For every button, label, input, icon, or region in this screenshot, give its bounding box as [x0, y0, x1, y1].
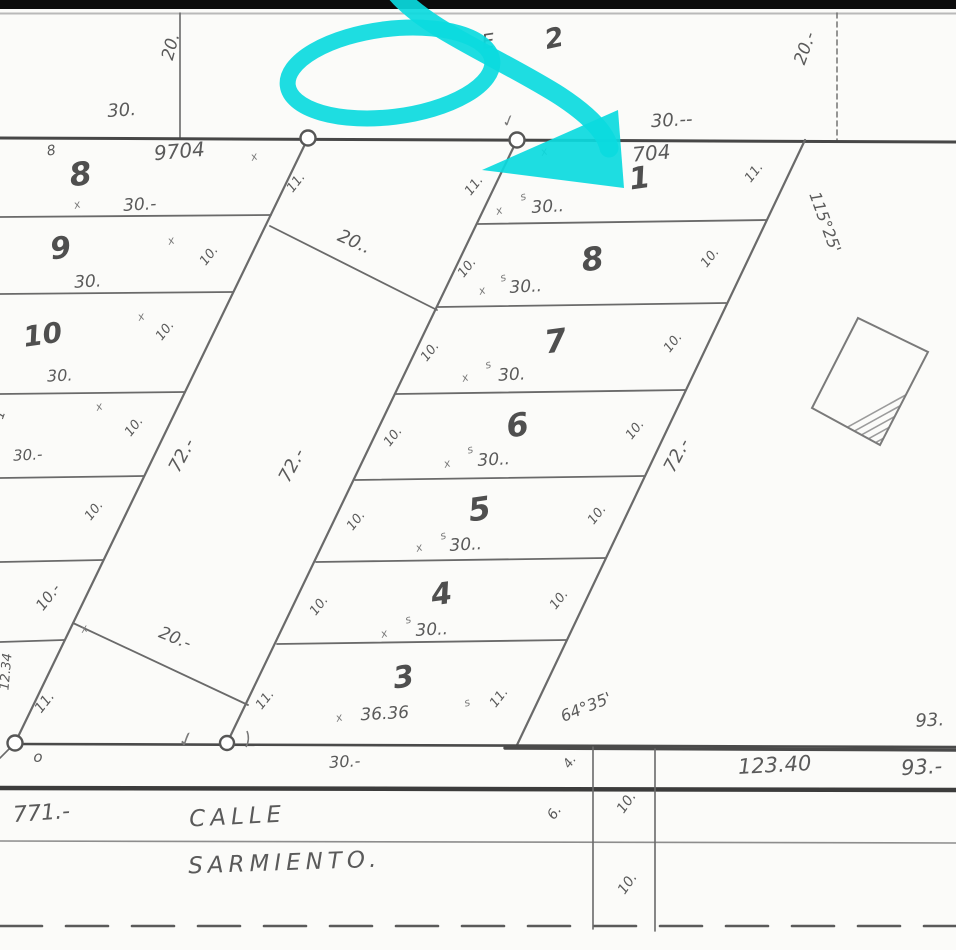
survey-monument	[8, 736, 23, 751]
dim-771: 771.-	[12, 799, 71, 828]
cadastral-plan-canvas: 20.30.E230.--20.-89704830.-930.1030.130.…	[0, 0, 956, 950]
parcel-id-9704: 9704	[153, 137, 206, 165]
frontage-30: 30.-	[123, 194, 157, 216]
dim-93: 93.-	[901, 754, 943, 780]
street-name-calle: CALLE	[189, 801, 287, 832]
frontage-30: 30.	[74, 271, 102, 292]
frontage-30: 30..	[509, 276, 542, 298]
dim-93-upper: 93.	[915, 709, 945, 731]
frontage-30: 30..	[477, 449, 510, 471]
dim-30-below: 30.-	[329, 751, 361, 772]
frontage-30: 30..	[415, 619, 448, 641]
scan-top-bar	[0, 0, 956, 9]
frontage-30: 30..	[449, 534, 482, 556]
dim-30-top-left: 30.	[107, 99, 137, 122]
street-north-edge-thick	[505, 748, 956, 750]
frontage-30: 30..	[531, 196, 564, 218]
scanned-survey-plan: 20.30.E230.--20.-89704830.-930.1030.130.…	[0, 0, 956, 950]
dim-30-top-right: 30.--	[650, 109, 693, 132]
frontage-30: 30.	[47, 365, 73, 385]
dim-123-40: 123.40	[737, 751, 812, 779]
survey-monument	[301, 131, 316, 146]
survey-monument	[220, 736, 234, 750]
lot-number-10: 10	[21, 316, 64, 354]
frontage-3636: 36.36	[360, 703, 410, 726]
point-mark-o: o	[33, 748, 42, 766]
street-south-edge	[0, 788, 956, 790]
survey-monument	[510, 133, 525, 148]
frontage-30: 30.	[498, 364, 526, 385]
frontage-30: 30.-	[13, 445, 43, 465]
